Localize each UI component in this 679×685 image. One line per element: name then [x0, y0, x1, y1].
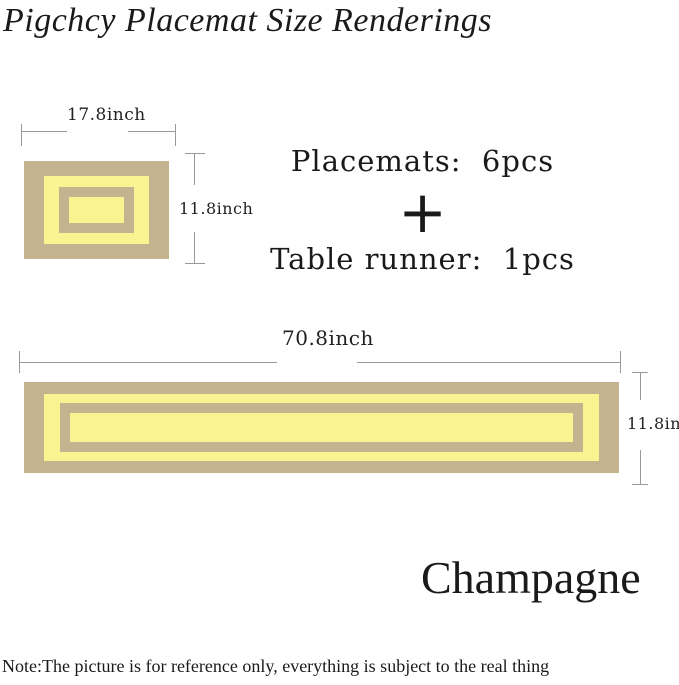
placemat-height-label: 11.8inch — [179, 199, 253, 218]
placemat-inner-ring — [44, 176, 149, 244]
dimension-line — [194, 232, 195, 263]
dimension-line — [21, 131, 67, 132]
color-name-label: Champagne — [421, 551, 641, 604]
dimension-line — [357, 362, 620, 363]
table-runner-center — [60, 403, 583, 452]
dimension-line — [640, 372, 641, 400]
table-runner-inner-ring — [44, 394, 599, 461]
dimension-line — [194, 153, 195, 185]
placemat-swatch — [24, 161, 169, 259]
dimension-tick — [21, 124, 22, 146]
runner-height-label: 11.8inch — [627, 414, 679, 433]
dimension-line — [19, 362, 277, 363]
runner-width-label: 70.8inch — [282, 326, 374, 350]
table-runner-swatch — [24, 382, 619, 473]
placemat-size-rendering: Pigchcy Placemat Size Renderings 17.8inc… — [0, 0, 679, 685]
dimension-line — [640, 450, 641, 484]
table-runner-count-label: Table runner: 1pcs — [250, 242, 595, 276]
dimension-line — [128, 131, 175, 132]
placemats-count-label: Placemats: 6pcs — [250, 144, 595, 178]
dimension-tick — [185, 263, 205, 264]
dimension-tick — [620, 351, 621, 373]
page-title: Pigchcy Placemat Size Renderings — [3, 2, 492, 40]
dimension-tick — [185, 153, 205, 154]
dimension-tick — [175, 124, 176, 146]
placemat-width-label: 17.8inch — [67, 105, 146, 125]
placemat-center — [59, 187, 134, 233]
disclaimer-note: Note:The picture is for reference only, … — [2, 656, 549, 677]
plus-sign: + — [250, 188, 595, 236]
dimension-tick — [632, 484, 648, 485]
dimension-tick — [19, 351, 20, 373]
